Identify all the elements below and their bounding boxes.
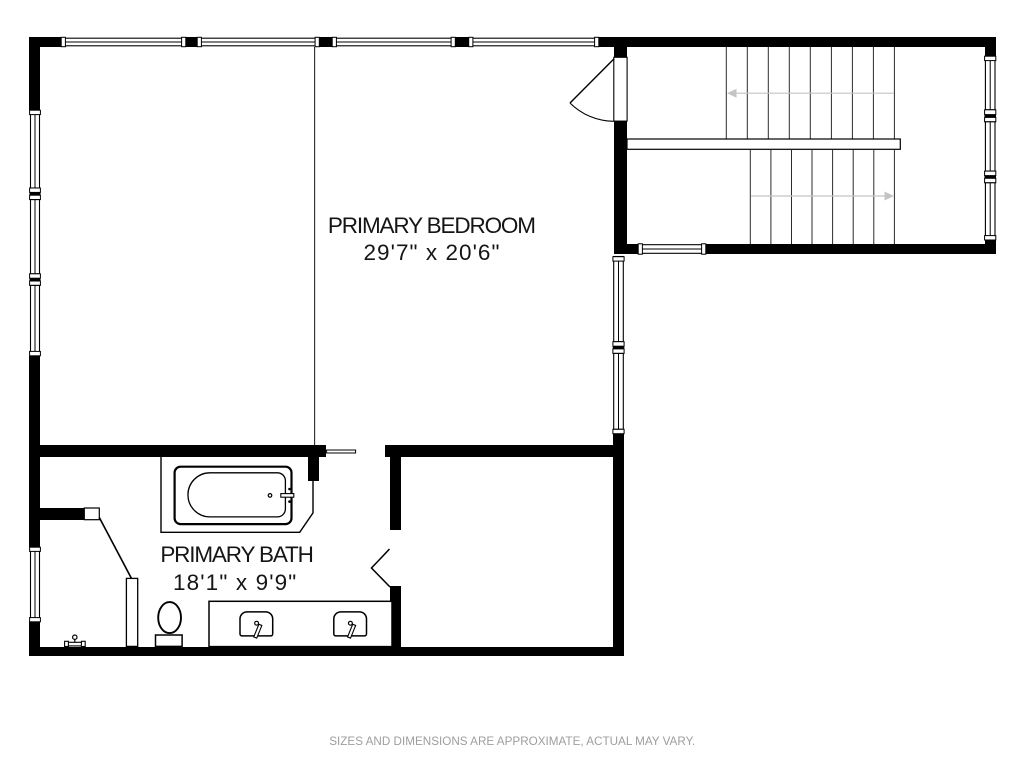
svg-text:18'1" x 9'9": 18'1" x 9'9" <box>173 570 297 595</box>
svg-text:29'7" x 20'6": 29'7" x 20'6" <box>363 240 500 265</box>
svg-text:PRIMARY BATH: PRIMARY BATH <box>160 542 312 567</box>
svg-text:PRIMARY BEDROOM: PRIMARY BEDROOM <box>328 213 535 238</box>
svg-text:SIZES AND DIMENSIONS ARE APPRO: SIZES AND DIMENSIONS ARE APPROXIMATE, AC… <box>329 735 695 748</box>
